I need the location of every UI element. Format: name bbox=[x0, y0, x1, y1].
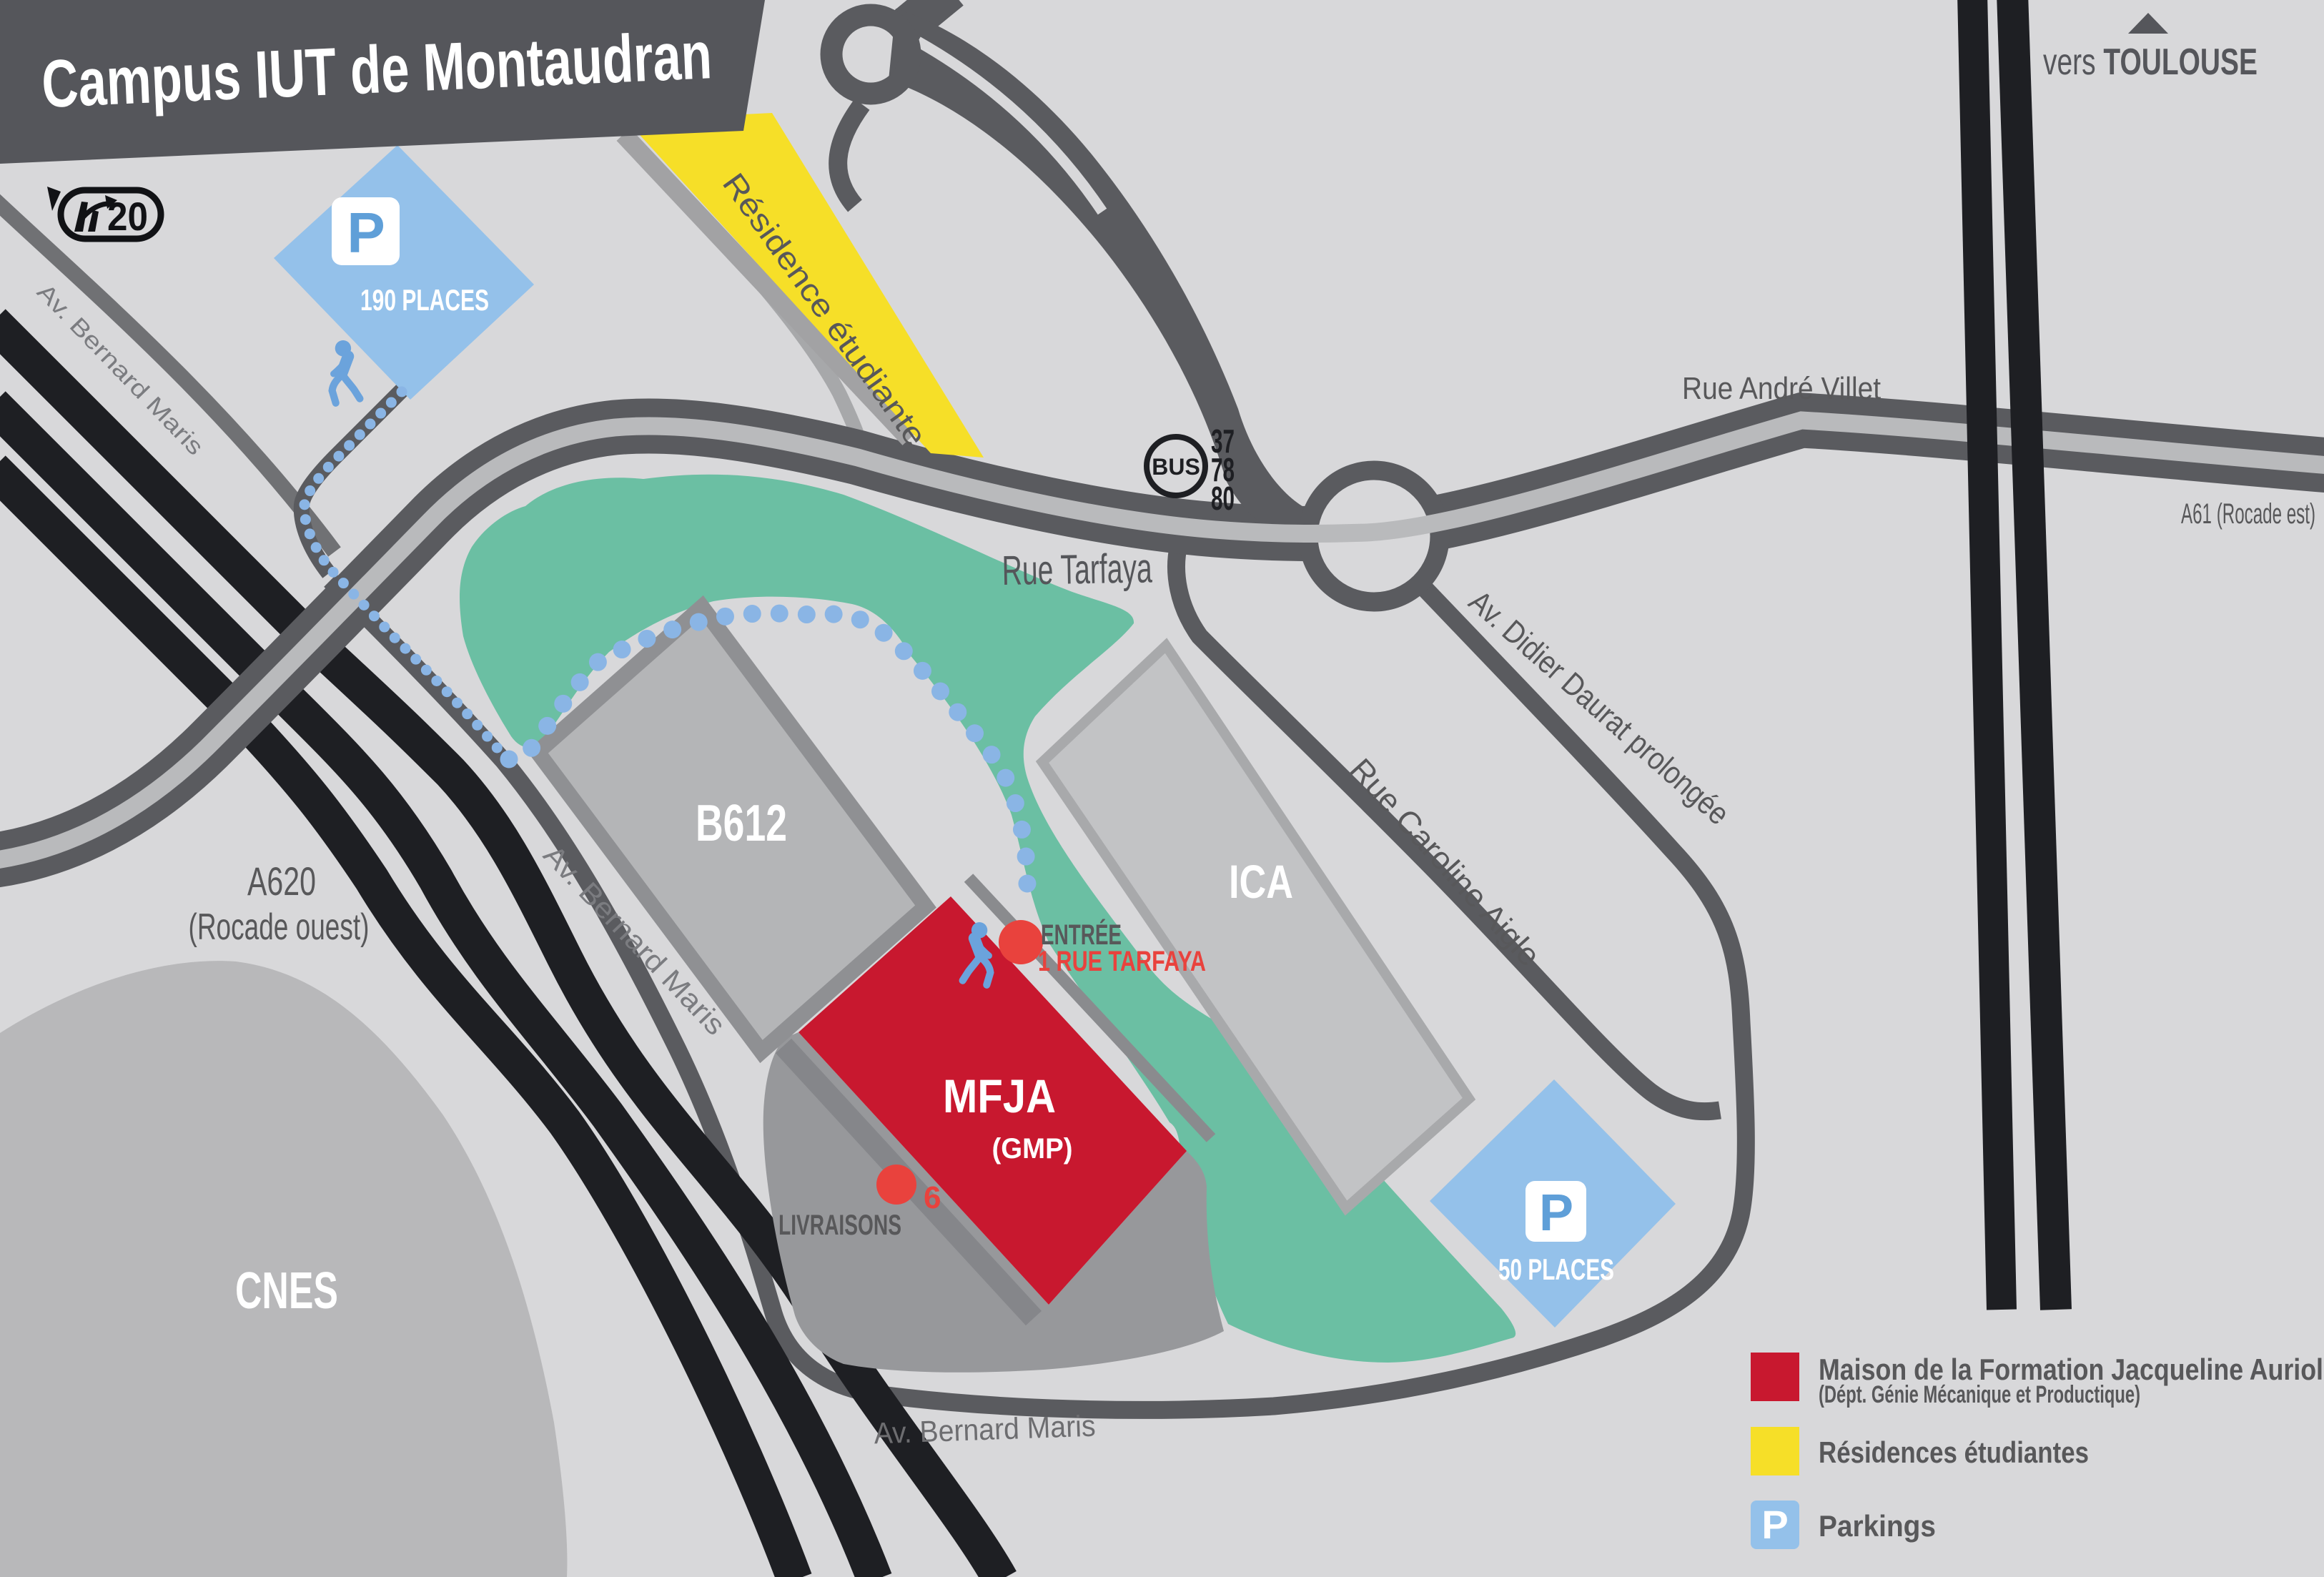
svg-text:A620: A620 bbox=[247, 859, 316, 904]
svg-text:50 PLACES: 50 PLACES bbox=[1498, 1252, 1614, 1286]
svg-text:Résidences étudiantes: Résidences étudiantes bbox=[1819, 1435, 2089, 1469]
svg-text:(GMP): (GMP) bbox=[992, 1133, 1073, 1165]
svg-text:1 RUE TARFAYA: 1 RUE TARFAYA bbox=[1038, 946, 1206, 977]
svg-text:(Dépt. Génie Mécanique et Prod: (Dépt. Génie Mécanique et Productique) bbox=[1819, 1381, 2140, 1408]
svg-text:6: 6 bbox=[924, 1180, 941, 1215]
svg-text:Rue André Villet: Rue André Villet bbox=[1682, 371, 1881, 406]
svg-text:A61 (Rocade est): A61 (Rocade est) bbox=[2181, 498, 2315, 530]
svg-text:P: P bbox=[347, 201, 385, 265]
svg-text:CNES: CNES bbox=[235, 1262, 338, 1320]
svg-text:190 PLACES: 190 PLACES bbox=[360, 283, 489, 317]
svg-text:LIVRAISONS: LIVRAISONS bbox=[778, 1210, 901, 1241]
svg-text:MFJA: MFJA bbox=[943, 1069, 1056, 1122]
svg-text:vers TOULOUSE: vers TOULOUSE bbox=[2043, 41, 2258, 83]
svg-text:(Rocade ouest): (Rocade ouest) bbox=[189, 906, 370, 948]
svg-text:ICA: ICA bbox=[1229, 855, 1293, 908]
svg-text:Parkings: Parkings bbox=[1819, 1509, 1936, 1543]
svg-text:80: 80 bbox=[1211, 480, 1235, 517]
svg-text:Rue Tarfaya: Rue Tarfaya bbox=[1002, 545, 1153, 594]
svg-text:P: P bbox=[1539, 1185, 1573, 1242]
svg-text:B612: B612 bbox=[696, 795, 787, 852]
svg-text:BUS: BUS bbox=[1152, 454, 1200, 480]
svg-text:P: P bbox=[1761, 1502, 1788, 1547]
